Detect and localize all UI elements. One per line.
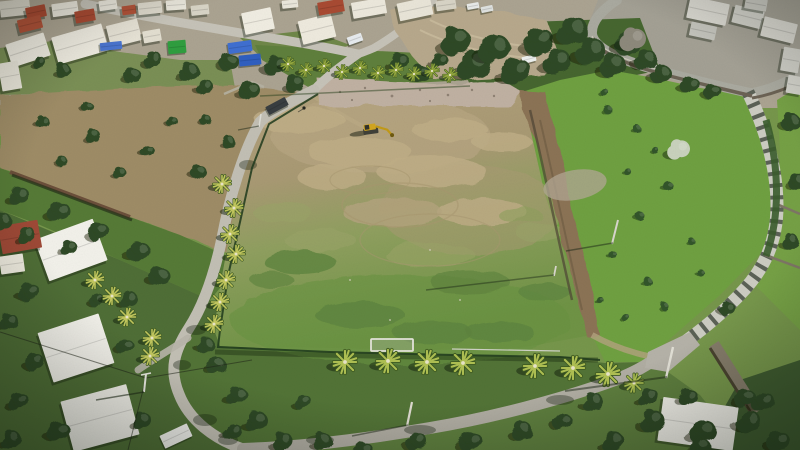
- aerial-photo: [0, 0, 800, 450]
- aerial-photo-canvas: [0, 0, 800, 450]
- vignette: [0, 0, 800, 450]
